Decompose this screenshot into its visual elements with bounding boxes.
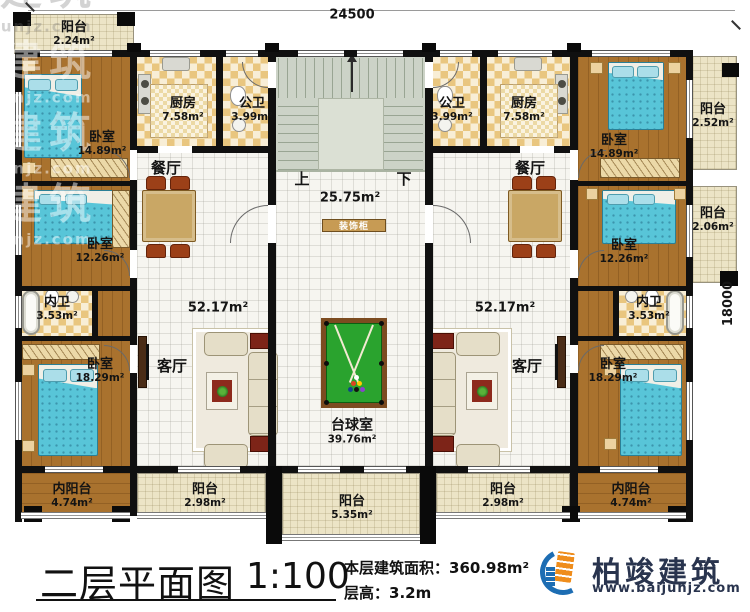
room-label-bath-r: 公卫3.99m² — [431, 97, 472, 123]
room-label-balcony-br: 阳台2.98m² — [482, 483, 523, 509]
door-opening — [570, 250, 578, 278]
wall — [216, 50, 223, 147]
nightstand — [22, 188, 34, 200]
wall — [21, 181, 130, 186]
room-label-kitchen-r: 厨房7.58m² — [503, 97, 544, 123]
wall — [480, 50, 487, 147]
wall — [15, 50, 692, 57]
door-opening — [158, 146, 192, 153]
dining-table — [508, 190, 562, 242]
plan-scale: 1:100 — [246, 556, 350, 597]
room-label-kitchen-l: 厨房7.58m² — [162, 97, 203, 123]
column — [13, 12, 31, 26]
door-opening — [268, 62, 276, 88]
column — [127, 43, 141, 52]
dining-table — [142, 190, 196, 242]
room-area: 3.99m² — [431, 111, 472, 123]
brand-website: www.baijunjz.com — [592, 581, 741, 596]
room-label-billiards: 台球室39.76m² — [328, 418, 377, 445]
chair — [512, 176, 532, 190]
room-label-bedroom-r3: 卧室18.29m² — [589, 358, 638, 384]
room-label-ensuite-r: 内卫3.53m² — [628, 296, 669, 322]
room-label-inner-balcony-l: 内阳台4.74m² — [51, 483, 92, 509]
chair — [170, 176, 190, 190]
window — [357, 50, 403, 57]
room-name: 卧室 — [590, 134, 639, 149]
room-name: 卧室 — [76, 358, 125, 373]
room-name: 阳台 — [692, 207, 733, 222]
railing — [436, 512, 570, 519]
door-opening — [130, 150, 137, 180]
room-name: 厨房 — [503, 97, 544, 112]
window — [45, 466, 103, 473]
door-opening — [570, 345, 578, 373]
wardrobe — [600, 158, 680, 178]
bed — [608, 62, 664, 130]
stair-landing — [318, 98, 384, 170]
room-label-bedroom-l1: 卧室14.89m² — [78, 131, 127, 157]
room-area: 4.74m² — [610, 497, 651, 509]
wall — [92, 288, 98, 341]
room-label-balcony-r1: 阳台2.52m² — [692, 103, 733, 129]
room-label-balcony-bl: 阳台2.98m² — [184, 483, 225, 509]
railing — [137, 512, 266, 519]
room-name: 厨房 — [162, 97, 203, 112]
room-area: 5.35m² — [331, 509, 372, 521]
room-area: 2.06m² — [692, 221, 733, 233]
room-area: 2.98m² — [184, 497, 225, 509]
room-name: 阳台 — [692, 103, 733, 118]
chair — [512, 244, 532, 258]
hall-area-label: 25.75m² — [320, 188, 380, 207]
room-area: 18.29m² — [589, 372, 638, 384]
wall — [578, 286, 686, 291]
window — [150, 50, 200, 57]
armchair — [456, 332, 500, 356]
window — [440, 50, 472, 57]
window — [592, 50, 670, 57]
nightstand — [590, 62, 603, 74]
room-area: 14.89m² — [590, 148, 639, 160]
window — [15, 205, 22, 255]
floor-height-line: 层高：3.2m — [344, 582, 431, 603]
dimension-right: 18000 — [721, 281, 736, 326]
room-name: 台球室 — [328, 418, 377, 434]
nightstand — [674, 188, 686, 200]
column — [422, 43, 436, 52]
nightstand — [604, 438, 617, 450]
armchair — [204, 332, 248, 356]
logo-building-small-icon — [546, 566, 555, 586]
room-name: 内卫 — [628, 296, 669, 311]
living-r-area-label: 52.17m² — [475, 298, 535, 317]
wall — [130, 146, 276, 153]
nightstand — [22, 440, 35, 452]
column — [420, 466, 436, 544]
door-opening — [130, 250, 137, 278]
stairs-down-label: 下 — [396, 170, 411, 188]
room-area: 12.26m² — [600, 253, 649, 265]
room-name: 卧室 — [600, 239, 649, 254]
room-name: 阳台 — [482, 483, 523, 498]
room-area: 39.76m² — [328, 434, 377, 446]
window — [226, 50, 258, 57]
column — [117, 12, 135, 26]
kitchen-sink — [162, 57, 190, 71]
room-area: 12.26m² — [76, 252, 125, 264]
railing — [21, 512, 130, 519]
door-opening — [425, 62, 433, 88]
window — [468, 466, 530, 473]
floor-height-value: 3.2m — [389, 584, 431, 602]
railing — [578, 512, 686, 519]
door-opening — [268, 205, 276, 243]
chair — [146, 176, 166, 190]
room-area: 14.89m² — [78, 145, 127, 157]
door-opening — [425, 205, 433, 243]
room-name: 卧室 — [589, 358, 638, 373]
cabinet-label: 装饰柜 — [339, 219, 369, 232]
bed — [602, 190, 676, 244]
room-area: 3.99m² — [231, 111, 272, 123]
tv-screen — [146, 344, 149, 380]
room-label-dining-l: 餐厅 — [151, 159, 181, 177]
chair — [536, 244, 556, 258]
dimension-line — [28, 10, 735, 11]
tv-screen — [555, 344, 558, 380]
wall — [425, 146, 577, 153]
room-label-bedroom-l2: 卧室12.26m² — [76, 238, 125, 264]
railing — [282, 534, 420, 541]
window — [15, 382, 22, 440]
room-label-ensuite-l: 内卫3.53m² — [36, 296, 77, 322]
room-name: 内阳台 — [51, 483, 92, 498]
room-name: 阳台 — [184, 483, 225, 498]
window — [686, 296, 693, 328]
room-name: 公卫 — [431, 97, 472, 112]
stair-direction-line — [351, 60, 353, 92]
wall — [570, 50, 578, 516]
coffee-table — [466, 372, 498, 410]
window — [298, 50, 344, 57]
room-name: 内阳台 — [610, 483, 651, 498]
window — [40, 50, 112, 57]
room-label-inner-balcony-r: 内阳台4.74m² — [610, 483, 651, 509]
door-opening — [520, 146, 554, 153]
room-label-bedroom-r2: 卧室12.26m² — [600, 239, 649, 265]
room-name: 阳台 — [53, 21, 94, 36]
wall — [15, 466, 692, 473]
window — [498, 50, 552, 57]
room-label-bath-l: 公卫3.99m² — [231, 97, 272, 123]
nightstand — [22, 364, 35, 376]
room-label-balcony-bc: 阳台5.35m² — [331, 495, 372, 521]
title-underline — [36, 599, 336, 601]
wall — [578, 336, 686, 341]
stairs-up-label: 上 — [294, 170, 309, 188]
column — [266, 466, 282, 544]
room-name: 卧室 — [76, 238, 125, 253]
floor-area-value: 360.98m² — [449, 559, 529, 577]
door-opening — [130, 345, 137, 373]
coffee-table — [206, 372, 238, 410]
wall — [613, 288, 619, 341]
room-balcony-r2 — [692, 186, 737, 283]
window — [15, 296, 22, 328]
room-label-bedroom-l3: 卧室18.29m² — [76, 358, 125, 384]
window — [364, 466, 406, 473]
dimension-tick — [731, 20, 741, 30]
room-area: 3.53m² — [36, 310, 77, 322]
column — [722, 63, 739, 77]
chair — [146, 244, 166, 258]
armchair — [204, 444, 248, 468]
room-area: 4.74m² — [51, 497, 92, 509]
dimension-top: 24500 — [329, 9, 374, 24]
side-table — [430, 436, 454, 452]
chair — [170, 244, 190, 258]
side-table — [430, 333, 454, 349]
room-label-balcony-tl: 阳台2.24m² — [53, 21, 94, 47]
nightstand — [586, 188, 598, 200]
floor-area-line: 本层建筑面积：360.98m² — [344, 557, 529, 578]
room-area: 2.52m² — [692, 117, 733, 129]
room-label-living-r: 客厅 — [512, 357, 542, 375]
column — [265, 43, 279, 52]
floor-area-label: 本层建筑面积： — [344, 559, 449, 577]
room-area: 7.58m² — [503, 111, 544, 123]
room-area: 7.58m² — [162, 111, 203, 123]
kitchen-sink — [514, 57, 542, 71]
stair-treads-left — [278, 98, 318, 170]
nightstand — [668, 62, 681, 74]
room-label-dining-r: 餐厅 — [515, 159, 545, 177]
room-name: 公卫 — [231, 97, 272, 112]
window — [686, 382, 693, 440]
window — [15, 92, 22, 147]
room-label-balcony-r2: 阳台2.06m² — [692, 207, 733, 233]
pool-table — [321, 318, 387, 408]
door-opening — [570, 150, 578, 180]
nightstand — [22, 162, 36, 174]
window — [298, 466, 340, 473]
window — [600, 466, 658, 473]
wall — [21, 286, 130, 291]
tv-cabinet — [557, 336, 566, 388]
wall — [130, 50, 137, 516]
living-l-area-label: 52.17m² — [188, 298, 248, 317]
armchair — [456, 444, 500, 468]
room-name: 卧室 — [78, 131, 127, 146]
floor-plan-sheet: 装饰柜 — [0, 0, 750, 612]
chair — [536, 176, 556, 190]
window — [178, 466, 240, 473]
room-area: 2.24m² — [53, 35, 94, 47]
nightstand — [22, 60, 36, 72]
room-name: 内卫 — [36, 296, 77, 311]
room-area: 3.53m² — [628, 310, 669, 322]
bed — [24, 74, 82, 158]
wall — [21, 336, 130, 341]
floor-height-label: 层高： — [344, 584, 389, 602]
wall — [578, 181, 686, 186]
room-area: 2.98m² — [482, 497, 523, 509]
room-area: 18.29m² — [76, 372, 125, 384]
room-name: 阳台 — [331, 495, 372, 510]
room-label-bedroom-r1: 卧室14.89m² — [590, 134, 639, 160]
column — [567, 43, 581, 52]
room-label-living-l: 客厅 — [157, 357, 187, 375]
stair-treads-right — [384, 98, 423, 170]
decorative-cabinet: 装饰柜 — [322, 219, 386, 232]
